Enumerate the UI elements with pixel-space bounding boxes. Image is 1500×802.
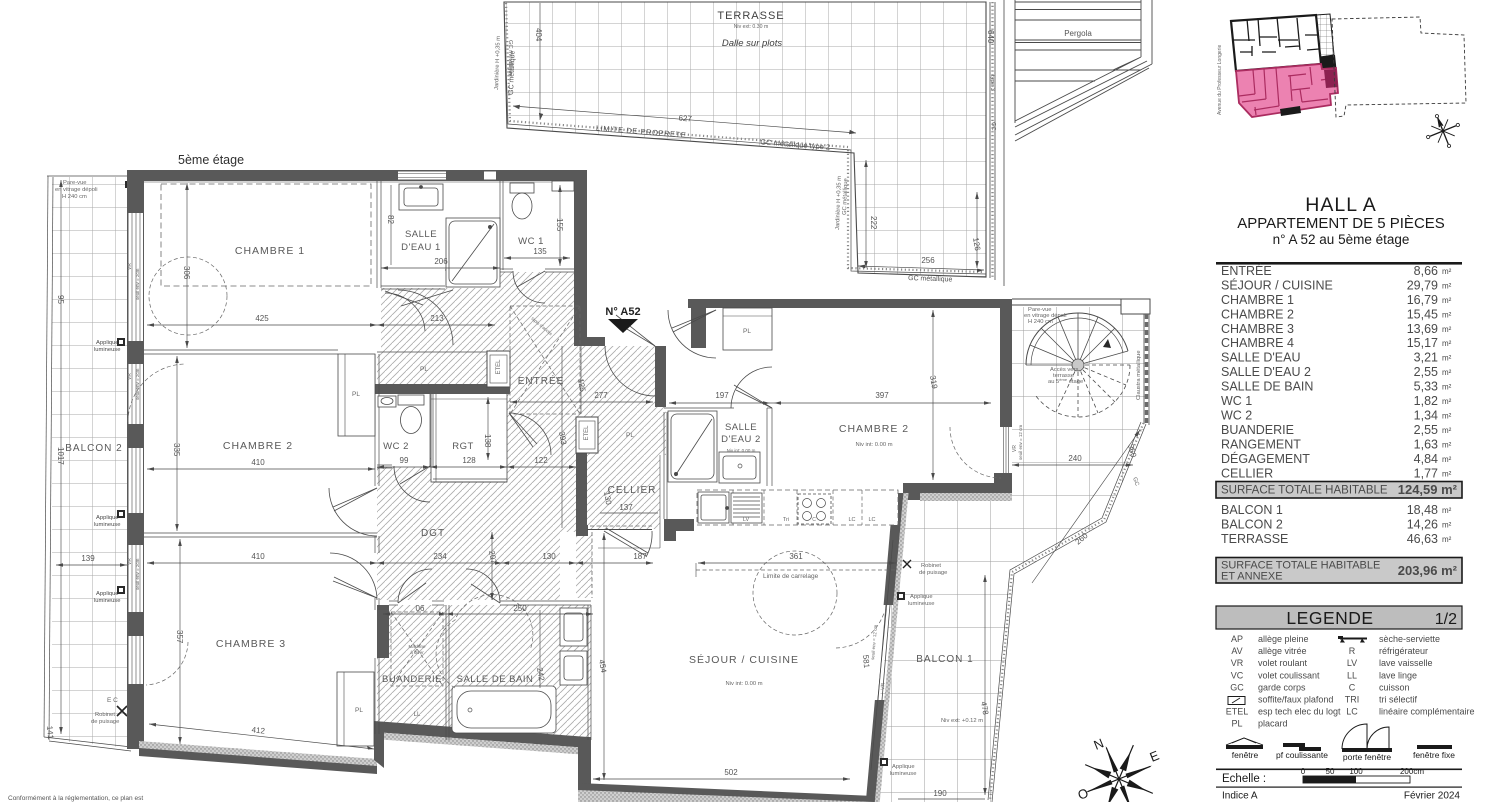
svg-text:14,26: 14,26 <box>1407 518 1438 532</box>
svg-text:placard: placard <box>1258 719 1288 729</box>
svg-text:lumineuse: lumineuse <box>890 771 916 777</box>
svg-text:Niv ext: +0.12 m: Niv ext: +0.12 m <box>941 718 983 724</box>
svg-text:3,21: 3,21 <box>1414 351 1438 365</box>
svg-text:WC 1: WC 1 <box>1221 394 1252 408</box>
svg-text:PL: PL <box>1231 719 1242 729</box>
svg-text:SALLE: SALLE <box>405 229 437 240</box>
svg-text:LC: LC <box>1346 707 1358 717</box>
svg-text:Pare-vue: Pare-vue <box>63 180 87 186</box>
svg-text:1,77: 1,77 <box>1414 466 1438 480</box>
svg-text:CHAMBRE 2: CHAMBRE 2 <box>1221 307 1294 321</box>
svg-text:m²: m² <box>1442 281 1452 290</box>
svg-text:m²: m² <box>1442 383 1452 392</box>
svg-text:lumineuse: lumineuse <box>94 522 120 528</box>
svg-text:lave vaisselle: lave vaisselle <box>1379 658 1433 668</box>
svg-text:WC 2: WC 2 <box>383 441 409 452</box>
svg-text:VC: VC <box>1231 670 1244 680</box>
svg-text:15,17: 15,17 <box>1407 336 1438 350</box>
svg-text:141: 141 <box>45 725 55 740</box>
svg-text:213: 213 <box>430 314 444 323</box>
svg-text:640: 640 <box>986 30 995 44</box>
svg-text:volet roulant: volet roulant <box>1258 658 1308 668</box>
svg-text:en vitrage dépoli: en vitrage dépoli <box>55 187 98 193</box>
svg-text:APPARTEMENT DE 5 PIÈCES: APPARTEMENT DE 5 PIÈCES <box>1237 215 1445 232</box>
svg-text:VR: VR <box>127 558 133 565</box>
svg-text:SÉJOUR / CUISINE: SÉJOUR / CUISINE <box>1221 277 1333 292</box>
svg-text:Echelle :: Echelle : <box>1222 773 1266 785</box>
svg-text:CHAMBRE 3: CHAMBRE 3 <box>1221 322 1294 336</box>
svg-text:SALLE: SALLE <box>725 422 757 433</box>
svg-text:190: 190 <box>933 789 947 798</box>
svg-text:581: 581 <box>861 654 871 669</box>
svg-text:361: 361 <box>789 552 803 561</box>
svg-text:222: 222 <box>869 216 878 230</box>
svg-text:m²: m² <box>1442 325 1452 334</box>
svg-text:HALL A: HALL A <box>1305 194 1376 216</box>
svg-text:2,55: 2,55 <box>1414 365 1438 379</box>
svg-text:ENTRÉE: ENTRÉE <box>1221 263 1272 278</box>
svg-text:410: 410 <box>251 458 265 467</box>
svg-text:DÉGAGEMENT: DÉGAGEMENT <box>1221 451 1310 466</box>
svg-text:1/2: 1/2 <box>1435 611 1457 628</box>
svg-text:sèche-serviette: sèche-serviette <box>1379 634 1440 644</box>
svg-text:137: 137 <box>619 503 633 512</box>
svg-text:GC métallique: GC métallique <box>507 40 513 77</box>
svg-text:0: 0 <box>1301 767 1306 776</box>
svg-text:18,48: 18,48 <box>1407 503 1438 517</box>
svg-text:AP: AP <box>1231 634 1243 644</box>
svg-text:BUANDERIE: BUANDERIE <box>382 674 442 685</box>
svg-text:135: 135 <box>533 247 547 256</box>
svg-text:13,69: 13,69 <box>1407 322 1438 336</box>
svg-text:Robinet: Robinet <box>95 712 115 718</box>
svg-text:Tri: Tri <box>783 517 789 523</box>
svg-text:TERRASSE: TERRASSE <box>1221 532 1288 546</box>
svg-text:240: 240 <box>1068 454 1082 463</box>
svg-text:SALLE D'EAU: SALLE D'EAU <box>1221 351 1301 365</box>
svg-text:CHAMBRE 3: CHAMBRE 3 <box>216 638 286 650</box>
svg-text:PL: PL <box>352 391 360 398</box>
svg-text:Niv int: 0.00 m: Niv int: 0.00 m <box>727 448 756 453</box>
svg-text:SÉJOUR / CUISINE: SÉJOUR / CUISINE <box>689 653 799 666</box>
svg-text:CELLIER: CELLIER <box>1221 466 1273 480</box>
svg-text:m²: m² <box>1442 339 1452 348</box>
svg-text:garde corps: garde corps <box>1258 682 1306 692</box>
svg-text:m²: m² <box>1442 310 1452 319</box>
svg-text:m²: m² <box>1442 426 1452 435</box>
svg-text:BALCON 1: BALCON 1 <box>1221 503 1283 517</box>
svg-text:Limite de carrelage: Limite de carrelage <box>763 573 819 580</box>
svg-text:n° A 52 au 5ème étage: n° A 52 au 5ème étage <box>1273 232 1410 247</box>
svg-text:BUANDERIE: BUANDERIE <box>1221 423 1294 437</box>
svg-text:LV: LV <box>1347 658 1357 668</box>
svg-text:06: 06 <box>416 604 425 613</box>
svg-text:lumineuse: lumineuse <box>94 347 120 353</box>
svg-text:203,96 m²: 203,96 m² <box>1398 563 1458 578</box>
svg-text:LL: LL <box>1347 670 1357 680</box>
svg-text:SALLE DE BAIN: SALLE DE BAIN <box>457 674 534 685</box>
svg-text:seuil env = 2cm: seuil env = 2cm <box>135 368 140 400</box>
svg-text:357: 357 <box>175 630 184 644</box>
svg-text:306: 306 <box>182 266 191 280</box>
svg-text:de puisage: de puisage <box>91 719 119 725</box>
svg-text:CHAMBRE 2: CHAMBRE 2 <box>839 423 909 435</box>
svg-text:m²: m² <box>1442 267 1452 276</box>
svg-text:15,45: 15,45 <box>1407 307 1438 321</box>
svg-text:BALCON 1: BALCON 1 <box>916 654 973 665</box>
svg-text:CHAMBRE 1: CHAMBRE 1 <box>235 245 305 257</box>
svg-text:esp tech elec du logt: esp tech elec du logt <box>1258 707 1341 717</box>
svg-text:SURFACE TOTALE HABITABLE: SURFACE TOTALE HABITABLE <box>1221 485 1388 497</box>
svg-text:m²: m² <box>1442 354 1452 363</box>
svg-text:porte fenêtre: porte fenêtre <box>1343 752 1391 762</box>
svg-text:type 3: type 3 <box>989 75 995 91</box>
svg-text:16,79: 16,79 <box>1407 293 1438 307</box>
svg-text:volet coulissant: volet coulissant <box>1258 670 1320 680</box>
svg-text:fenêtre fixe: fenêtre fixe <box>1413 750 1455 760</box>
svg-text:H 240 cm: H 240 cm <box>62 194 87 200</box>
svg-text:Niv int: 0.00 m: Niv int: 0.00 m <box>725 681 762 687</box>
svg-text:LV: LV <box>743 517 750 523</box>
svg-text:seuil env = 2cm: seuil env = 2cm <box>135 558 140 590</box>
svg-text:allège pleine: allège pleine <box>1258 634 1309 644</box>
svg-text:277: 277 <box>594 391 608 400</box>
svg-text:GC métallique: GC métallique <box>842 178 849 215</box>
svg-text:1,82: 1,82 <box>1414 394 1438 408</box>
svg-text:234: 234 <box>433 552 447 561</box>
svg-text:206: 206 <box>434 257 448 266</box>
svg-text:CHAMBRE 2: CHAMBRE 2 <box>223 440 293 452</box>
svg-text:C: C <box>1349 682 1356 692</box>
svg-text:CELLIER: CELLIER <box>608 485 657 496</box>
svg-text:99: 99 <box>400 456 409 465</box>
svg-text:335: 335 <box>172 443 181 457</box>
svg-text:m²: m² <box>1442 397 1452 406</box>
svg-text:Applique: Applique <box>96 340 119 346</box>
svg-text:Applique: Applique <box>96 515 119 521</box>
svg-text:E C: E C <box>107 697 118 704</box>
svg-text:CHAMBRE 4: CHAMBRE 4 <box>1221 336 1294 350</box>
svg-text:8,66: 8,66 <box>1414 264 1438 278</box>
svg-text:TRI: TRI <box>1345 695 1360 705</box>
svg-text:réfrigérateur: réfrigérateur <box>1379 646 1428 656</box>
svg-text:PL: PL <box>355 707 363 714</box>
svg-text:tri sélectif: tri sélectif <box>1379 695 1418 705</box>
svg-text:allège vitrée: allège vitrée <box>1258 646 1307 656</box>
svg-text:m²: m² <box>1442 469 1452 478</box>
svg-text:WC 2: WC 2 <box>1221 409 1252 423</box>
svg-text:250: 250 <box>513 604 527 613</box>
svg-text:R: R <box>1349 646 1356 656</box>
svg-text:D'EAU 2: D'EAU 2 <box>721 434 761 445</box>
svg-text:95: 95 <box>56 295 65 304</box>
svg-text:Indice A: Indice A <box>1222 791 1258 802</box>
svg-text:122: 122 <box>534 456 548 465</box>
svg-text:ETEL: ETEL <box>496 359 502 375</box>
svg-text:GC: GC <box>990 122 996 131</box>
svg-text:Claustra métallique: Claustra métallique <box>1136 350 1142 400</box>
svg-text:139: 139 <box>81 554 95 563</box>
svg-text:82: 82 <box>386 215 395 224</box>
svg-text:397: 397 <box>875 391 889 400</box>
svg-text:Applique: Applique <box>910 594 933 600</box>
svg-text:m²: m² <box>1442 412 1452 421</box>
svg-text:100: 100 <box>1349 767 1363 776</box>
svg-text:124,59 m²: 124,59 m² <box>1398 482 1458 497</box>
svg-text:LC: LC <box>868 517 875 523</box>
svg-text:lave linge: lave linge <box>1379 670 1417 680</box>
svg-text:ENTRÉE: ENTRÉE <box>518 374 565 387</box>
svg-text:Machine: Machine <box>408 644 426 649</box>
svg-text:410: 410 <box>251 552 265 561</box>
svg-text:GC: GC <box>1230 682 1244 692</box>
svg-text:200cm: 200cm <box>1400 767 1424 776</box>
svg-text:soffite/faux plafond: soffite/faux plafond <box>1258 695 1333 705</box>
svg-text:LEGENDE: LEGENDE <box>1286 608 1373 628</box>
svg-text:412: 412 <box>251 725 266 735</box>
svg-text:50: 50 <box>1326 767 1335 776</box>
svg-text:cuisson: cuisson <box>1379 682 1410 692</box>
svg-text:2,55: 2,55 <box>1414 423 1438 437</box>
svg-text:Applique: Applique <box>892 764 915 770</box>
svg-text:187: 187 <box>633 552 647 561</box>
svg-text:RGT: RGT <box>452 441 474 452</box>
svg-text:ET ANNEXE: ET ANNEXE <box>1221 571 1283 583</box>
svg-text:Robinet: Robinet <box>921 563 941 569</box>
svg-text:4,84: 4,84 <box>1414 452 1438 466</box>
svg-text:m²: m² <box>1442 440 1452 449</box>
svg-text:m²: m² <box>1442 506 1452 515</box>
svg-text:à laver: à laver <box>410 650 424 655</box>
svg-text:LC: LC <box>848 517 855 523</box>
svg-text:SALLE D'EAU 2: SALLE D'EAU 2 <box>1221 365 1311 379</box>
svg-text:Niv int: 0.00 m: Niv int: 0.00 m <box>855 442 892 448</box>
svg-text:linéaire complémentaire: linéaire complémentaire <box>1379 707 1475 717</box>
svg-text:m²: m² <box>1442 521 1452 530</box>
svg-text:5,33: 5,33 <box>1414 380 1438 394</box>
svg-text:Dalle sur plots: Dalle sur plots <box>722 38 782 49</box>
svg-text:DGT: DGT <box>421 528 445 539</box>
svg-text:1,63: 1,63 <box>1414 437 1438 451</box>
svg-text:Avenue du Professeur Longerie: Avenue du Professeur Longerie <box>1217 45 1223 115</box>
svg-text:SALLE DE BAIN: SALLE DE BAIN <box>1221 380 1313 394</box>
svg-text:CHAMBRE 1: CHAMBRE 1 <box>1221 293 1294 307</box>
svg-text:256: 256 <box>921 256 935 265</box>
svg-text:D'EAU 1: D'EAU 1 <box>401 242 441 253</box>
svg-text:Février 2024: Février 2024 <box>1404 791 1461 802</box>
svg-text:RANGEMENT: RANGEMENT <box>1221 437 1301 451</box>
svg-text:lumineuse: lumineuse <box>94 598 120 604</box>
svg-text:PL: PL <box>743 328 751 335</box>
svg-text:TERRASSE: TERRASSE <box>717 10 784 22</box>
svg-text:404: 404 <box>534 28 543 42</box>
svg-text:PL: PL <box>420 366 428 373</box>
svg-text:pf coulissante: pf coulissante <box>1276 750 1328 760</box>
svg-text:lumineuse: lumineuse <box>908 601 934 607</box>
svg-text:VR: VR <box>127 373 133 380</box>
svg-text:BALCON 2: BALCON 2 <box>1221 518 1283 532</box>
svg-text:ETEL: ETEL <box>1226 707 1249 717</box>
svg-text:502: 502 <box>724 768 738 777</box>
svg-text:fenêtre: fenêtre <box>1232 750 1259 760</box>
svg-text:seuil env = 2cm: seuil env = 2cm <box>135 268 140 300</box>
svg-text:46,63: 46,63 <box>1407 532 1438 546</box>
svg-text:VR: VR <box>1231 658 1244 668</box>
svg-text:de puisage: de puisage <box>919 570 947 576</box>
svg-text:BALCON 2: BALCON 2 <box>65 443 122 454</box>
svg-text:H 240 cm: H 240 cm <box>1028 319 1053 325</box>
svg-text:VR: VR <box>127 263 133 270</box>
svg-text:Applique: Applique <box>96 591 119 597</box>
svg-text:m²: m² <box>1442 368 1452 377</box>
svg-text:197: 197 <box>715 391 729 400</box>
svg-text:627: 627 <box>678 113 693 123</box>
svg-text:5ème étage: 5ème étage <box>178 153 244 167</box>
svg-text:130: 130 <box>542 552 556 561</box>
svg-text:AV: AV <box>1231 646 1242 656</box>
svg-text:N° A52: N° A52 <box>605 306 640 318</box>
svg-text:WC 1: WC 1 <box>518 236 544 247</box>
svg-text:seuil env = 12 cm: seuil env = 12 cm <box>1018 425 1023 460</box>
svg-text:1017: 1017 <box>56 447 65 465</box>
svg-text:PL: PL <box>626 432 634 439</box>
svg-text:138: 138 <box>483 434 492 448</box>
svg-text:425: 425 <box>255 314 269 323</box>
svg-text:m²: m² <box>1442 296 1452 305</box>
svg-text:Niv ext: 0.30 m: Niv ext: 0.30 m <box>734 24 769 30</box>
svg-text:m²: m² <box>1442 535 1452 544</box>
svg-text:ETEL: ETEL <box>584 425 590 441</box>
svg-text:LL: LL <box>414 712 421 718</box>
svg-text:m²: m² <box>1442 455 1452 464</box>
svg-text:29,79: 29,79 <box>1407 278 1438 292</box>
svg-text:1,34: 1,34 <box>1414 409 1438 423</box>
svg-text:128: 128 <box>462 456 476 465</box>
svg-text:C: C <box>812 517 816 523</box>
svg-text:155: 155 <box>555 218 564 232</box>
svg-text:Pergola: Pergola <box>1064 29 1092 38</box>
svg-text:Conformément à la réglementati: Conformément à la réglementation, ce pla… <box>8 795 143 802</box>
